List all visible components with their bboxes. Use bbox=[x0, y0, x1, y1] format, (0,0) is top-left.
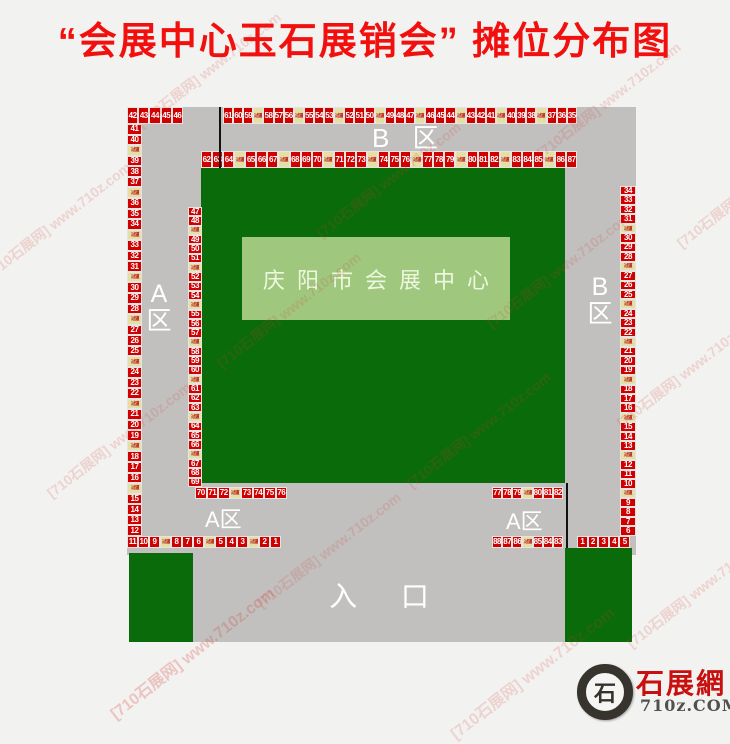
booth-cell: 32 bbox=[620, 205, 636, 214]
booth-cell: 11 bbox=[127, 536, 138, 548]
booth-cell: 60 bbox=[233, 107, 243, 124]
booth-cell: 55 bbox=[304, 107, 314, 124]
aisle-cell: 过道 bbox=[248, 536, 259, 548]
booth-cell: 79 bbox=[512, 487, 522, 499]
booth-col-right-outer: 34333231过道302928过道272625过道242322过道212019… bbox=[620, 186, 636, 536]
booth-cell: 4 bbox=[609, 536, 620, 548]
booth-cell: 85 bbox=[533, 536, 543, 548]
booth-row-bottom-inner-left: 707172过道73747576 bbox=[195, 487, 287, 499]
booth-cell: 6 bbox=[620, 526, 636, 535]
booth-cell: 2 bbox=[588, 536, 599, 548]
booth-cell: 36 bbox=[557, 107, 567, 124]
booth-cell: 82 bbox=[489, 151, 500, 168]
aisle-cell: 过道 bbox=[334, 107, 344, 124]
booth-cell: 70 bbox=[312, 151, 323, 168]
booth-cell: 69 bbox=[188, 478, 202, 487]
aisle-cell: 过道 bbox=[278, 151, 289, 168]
aisle-cell: 过道 bbox=[323, 151, 334, 168]
aisle-cell: 过道 bbox=[234, 151, 245, 168]
booth-cell: 25 bbox=[620, 290, 636, 299]
booth-cell: 49 bbox=[188, 235, 202, 244]
booth-cell: 59 bbox=[188, 356, 202, 365]
green-block-right bbox=[565, 548, 632, 642]
booth-cell: 4 bbox=[226, 536, 237, 548]
booth-cell: 25 bbox=[127, 346, 142, 357]
booth-cell: 59 bbox=[243, 107, 253, 124]
booth-cell: 77 bbox=[492, 487, 502, 499]
booth-cell: 37 bbox=[547, 107, 557, 124]
aisle-cell: 过道 bbox=[620, 413, 636, 422]
aisle-cell: 过道 bbox=[522, 536, 532, 548]
booth-row-bottom-outer-left: 11109过道876过道543过道21 bbox=[127, 536, 281, 548]
booth-cell: 54 bbox=[188, 291, 202, 300]
booth-cell: 33 bbox=[127, 240, 142, 251]
booth-cell: 23 bbox=[127, 378, 142, 389]
aisle-cell: 过道 bbox=[620, 262, 636, 271]
aisle-cell: 过道 bbox=[620, 451, 636, 460]
booth-cell: 78 bbox=[502, 487, 512, 499]
booth-cell: 35 bbox=[127, 209, 142, 220]
booth-cell: 58 bbox=[263, 107, 273, 124]
booth-cell: 10 bbox=[138, 536, 149, 548]
booth-row-top-left-corner: 4243444546 bbox=[127, 107, 183, 124]
booth-cell: 42 bbox=[476, 107, 486, 124]
booth-cell: 83 bbox=[553, 536, 563, 548]
aisle-cell: 过道 bbox=[455, 151, 466, 168]
aisle-cell: 过道 bbox=[544, 151, 555, 168]
booth-cell: 31 bbox=[127, 261, 142, 272]
booth-cell: 73 bbox=[356, 151, 367, 168]
watermark-text: [710石展网] www.710z.com bbox=[0, 157, 135, 282]
hall-name-label: 庆阳市会展中心 bbox=[251, 263, 501, 295]
booth-cell: 47 bbox=[188, 207, 202, 216]
booth-cell: 30 bbox=[620, 233, 636, 242]
booth-cell: 80 bbox=[533, 487, 543, 499]
booth-cell: 34 bbox=[127, 219, 142, 230]
booth-cell: 1 bbox=[270, 536, 281, 548]
booth-cell: 23 bbox=[620, 318, 636, 327]
booth-cell: 29 bbox=[620, 243, 636, 252]
booth-cell: 68 bbox=[188, 468, 202, 477]
booth-cell: 63 bbox=[212, 151, 223, 168]
booth-cell: 30 bbox=[127, 282, 142, 293]
aisle-cell: 过道 bbox=[620, 375, 636, 384]
booth-cell: 40 bbox=[506, 107, 516, 124]
booth-cell: 26 bbox=[127, 335, 142, 346]
booth-cell: 28 bbox=[127, 304, 142, 315]
booth-cell: 22 bbox=[127, 388, 142, 399]
booth-cell: 50 bbox=[188, 244, 202, 253]
booth-cell: 1 bbox=[577, 536, 588, 548]
booth-cell: 84 bbox=[522, 151, 533, 168]
booth-cell: 87 bbox=[502, 536, 512, 548]
entrance-label: 入 口 bbox=[193, 575, 565, 615]
booth-cell: 64 bbox=[188, 422, 202, 431]
booth-cell: 17 bbox=[620, 394, 636, 403]
booth-cell: 22 bbox=[620, 328, 636, 337]
booth-cell: 7 bbox=[620, 517, 636, 526]
booth-cell: 65 bbox=[245, 151, 256, 168]
booth-cell: 57 bbox=[188, 328, 202, 337]
booth-cell: 71 bbox=[207, 487, 219, 499]
aisle-cell: 过道 bbox=[127, 314, 142, 325]
booth-cell: 11 bbox=[620, 470, 636, 479]
booth-cell: 74 bbox=[253, 487, 265, 499]
booth-cell: 62 bbox=[188, 394, 202, 403]
separator-line-top bbox=[219, 107, 221, 168]
booth-cell: 17 bbox=[127, 462, 142, 473]
booth-cell: 43 bbox=[138, 107, 149, 124]
booth-cell: 86 bbox=[512, 536, 522, 548]
booth-cell: 71 bbox=[334, 151, 345, 168]
booth-cell: 67 bbox=[188, 459, 202, 468]
booth-cell: 80 bbox=[467, 151, 478, 168]
aisle-cell: 过道 bbox=[230, 487, 242, 499]
booth-cell: 21 bbox=[127, 409, 142, 420]
site-logo-icon: 石 bbox=[577, 664, 633, 720]
booth-cell: 88 bbox=[492, 536, 502, 548]
aisle-cell: 过道 bbox=[188, 375, 202, 384]
zone-a-left-letter: A bbox=[151, 280, 168, 308]
booth-cell: 9 bbox=[620, 498, 636, 507]
booth-row-bottom-outer-right: 888786过道858483 bbox=[492, 536, 563, 548]
booth-cell: 76 bbox=[276, 487, 288, 499]
booth-cell: 72 bbox=[218, 487, 230, 499]
booth-cell: 2 bbox=[259, 536, 270, 548]
booth-cell: 31 bbox=[620, 214, 636, 223]
booth-cell: 19 bbox=[127, 430, 142, 441]
booth-cell: 24 bbox=[127, 367, 142, 378]
booth-cell: 51 bbox=[354, 107, 364, 124]
booth-cell: 82 bbox=[553, 487, 563, 499]
booth-cell: 38 bbox=[526, 107, 536, 124]
aisle-cell: 过道 bbox=[536, 107, 546, 124]
booth-col-left-inner: 4748过道495051过道525354过道555657过道585960过道61… bbox=[188, 207, 202, 487]
booth-cell: 85 bbox=[533, 151, 544, 168]
aisle-cell: 过道 bbox=[620, 224, 636, 233]
booth-cell: 46 bbox=[172, 107, 183, 124]
booth-cell: 65 bbox=[188, 431, 202, 440]
aisle-cell: 过道 bbox=[620, 299, 636, 308]
booth-cell: 27 bbox=[127, 325, 142, 336]
aisle-cell: 过道 bbox=[620, 337, 636, 346]
booth-cell: 16 bbox=[127, 473, 142, 484]
aisle-cell: 过道 bbox=[127, 272, 142, 283]
booth-cell: 56 bbox=[284, 107, 294, 124]
booth-cell: 67 bbox=[267, 151, 278, 168]
booth-cell: 15 bbox=[127, 494, 142, 505]
booth-cell: 60 bbox=[188, 366, 202, 375]
separator-line-bottom bbox=[566, 483, 568, 548]
zone-label-a-bottom-left: A区 bbox=[205, 502, 242, 534]
booth-cell: 37 bbox=[127, 177, 142, 188]
booth-cell: 18 bbox=[127, 451, 142, 462]
booth-cell: 24 bbox=[620, 309, 636, 318]
booth-col-left-outer: 4140过道393837过道363534过道333231过道302928过道27… bbox=[127, 124, 142, 536]
zone-label-b-right: B 区 bbox=[583, 274, 617, 328]
booth-cell: 12 bbox=[620, 460, 636, 469]
aisle-cell: 过道 bbox=[127, 187, 142, 198]
aisle-cell: 过道 bbox=[188, 412, 202, 421]
aisle-cell: 过道 bbox=[127, 441, 142, 452]
booth-cell: 54 bbox=[314, 107, 324, 124]
booth-cell: 55 bbox=[188, 310, 202, 319]
booth-cell: 72 bbox=[345, 151, 356, 168]
zone-b-right-letter: B bbox=[592, 273, 609, 301]
booth-cell: 34 bbox=[620, 186, 636, 195]
booth-cell: 8 bbox=[620, 507, 636, 516]
booth-cell: 7 bbox=[182, 536, 193, 548]
booth-cell: 13 bbox=[127, 515, 142, 526]
booth-cell: 5 bbox=[215, 536, 226, 548]
booth-cell: 3 bbox=[237, 536, 248, 548]
aisle-cell: 过道 bbox=[127, 145, 142, 156]
booth-cell: 51 bbox=[188, 254, 202, 263]
booth-cell: 38 bbox=[127, 166, 142, 177]
booth-cell: 33 bbox=[620, 195, 636, 204]
booth-cell: 56 bbox=[188, 319, 202, 328]
aisle-cell: 过道 bbox=[127, 399, 142, 410]
hall-name-box: 庆阳市会展中心 bbox=[242, 237, 510, 320]
site-logo-domain: 710z.COM bbox=[640, 696, 730, 715]
booth-cell: 83 bbox=[511, 151, 522, 168]
zone-a-left-char: 区 bbox=[146, 307, 171, 335]
booth-cell: 39 bbox=[516, 107, 526, 124]
aisle-cell: 过道 bbox=[188, 338, 202, 347]
booth-cell: 3 bbox=[598, 536, 609, 548]
zone-label-b-top: B 区 bbox=[372, 118, 447, 155]
aisle-cell: 过道 bbox=[522, 487, 532, 499]
booth-cell: 9 bbox=[149, 536, 160, 548]
booth-cell: 68 bbox=[290, 151, 301, 168]
aisle-cell: 过道 bbox=[188, 300, 202, 309]
booth-cell: 44 bbox=[445, 107, 455, 124]
booth-cell: 20 bbox=[127, 420, 142, 431]
booth-cell: 64 bbox=[223, 151, 234, 168]
booth-cell: 14 bbox=[127, 504, 142, 515]
booth-cell: 41 bbox=[486, 107, 496, 124]
watermark-text: [710石展网] www.710z.com bbox=[673, 127, 730, 252]
booth-cell: 52 bbox=[188, 272, 202, 281]
booth-cell: 8 bbox=[171, 536, 182, 548]
booth-cell: 44 bbox=[149, 107, 160, 124]
zone-label-a-bottom-right: A区 bbox=[506, 504, 543, 536]
aisle-cell: 过道 bbox=[204, 536, 215, 548]
booth-cell: 16 bbox=[620, 403, 636, 412]
exhibition-hall: 庆阳市会展中心 bbox=[201, 168, 565, 483]
booth-cell: 27 bbox=[620, 271, 636, 280]
booth-row-bottom-inner-right: 777879过道808182 bbox=[492, 487, 563, 499]
booth-cell: 41 bbox=[127, 124, 142, 135]
booth-cell: 84 bbox=[543, 536, 553, 548]
booth-cell: 86 bbox=[555, 151, 566, 168]
booth-cell: 15 bbox=[620, 422, 636, 431]
booth-cell: 26 bbox=[620, 281, 636, 290]
booth-cell: 53 bbox=[324, 107, 334, 124]
booth-cell: 18 bbox=[620, 385, 636, 394]
green-block-left bbox=[129, 553, 193, 642]
zone-b-right-char: 区 bbox=[587, 300, 612, 328]
booth-cell: 75 bbox=[264, 487, 276, 499]
aisle-cell: 过道 bbox=[500, 151, 511, 168]
booth-cell: 21 bbox=[620, 347, 636, 356]
zone-label-a-left: A 区 bbox=[142, 281, 176, 335]
aisle-cell: 过道 bbox=[188, 263, 202, 272]
booth-cell: 81 bbox=[478, 151, 489, 168]
booth-cell: 63 bbox=[188, 403, 202, 412]
page-title: “会展中心玉石展销会” 摊位分布图 bbox=[0, 10, 730, 65]
booth-cell: 73 bbox=[241, 487, 253, 499]
aisle-cell: 过道 bbox=[188, 226, 202, 235]
booth-cell: 48 bbox=[188, 216, 202, 225]
booth-cell: 20 bbox=[620, 356, 636, 365]
booth-cell: 29 bbox=[127, 293, 142, 304]
booth-cell: 14 bbox=[620, 432, 636, 441]
booth-cell: 70 bbox=[195, 487, 207, 499]
booth-cell: 52 bbox=[344, 107, 354, 124]
booth-cell: 61 bbox=[223, 107, 233, 124]
booth-cell: 69 bbox=[301, 151, 312, 168]
booth-cell: 81 bbox=[543, 487, 553, 499]
aisle-cell: 过道 bbox=[127, 483, 142, 494]
booth-cell: 58 bbox=[188, 347, 202, 356]
aisle-cell: 过道 bbox=[253, 107, 263, 124]
aisle-cell: 过道 bbox=[188, 450, 202, 459]
booth-cell: 61 bbox=[188, 384, 202, 393]
booth-cell: 66 bbox=[188, 440, 202, 449]
aisle-cell: 过道 bbox=[127, 230, 142, 241]
booth-cell: 36 bbox=[127, 198, 142, 209]
aisle-cell: 过道 bbox=[456, 107, 466, 124]
booth-cell: 57 bbox=[274, 107, 284, 124]
booth-cell: 66 bbox=[256, 151, 267, 168]
booth-cell: 6 bbox=[193, 536, 204, 548]
booth-cell: 39 bbox=[127, 156, 142, 167]
aisle-cell: 过道 bbox=[294, 107, 304, 124]
booth-cell: 28 bbox=[620, 252, 636, 261]
booth-row-bottom-right-entry: 12345 bbox=[577, 536, 630, 548]
aisle-cell: 过道 bbox=[127, 356, 142, 367]
logo-stone-glyph: 石 bbox=[594, 676, 616, 708]
aisle-cell: 过道 bbox=[160, 536, 171, 548]
booth-cell: 45 bbox=[161, 107, 172, 124]
aisle-cell: 过道 bbox=[620, 489, 636, 498]
booth-cell: 53 bbox=[188, 282, 202, 291]
booth-cell: 43 bbox=[466, 107, 476, 124]
booth-cell: 13 bbox=[620, 441, 636, 450]
booth-cell: 62 bbox=[201, 151, 212, 168]
booth-cell: 32 bbox=[127, 251, 142, 262]
booth-cell: 19 bbox=[620, 366, 636, 375]
booth-cell: 5 bbox=[619, 536, 630, 548]
booth-cell: 42 bbox=[127, 107, 138, 124]
booth-cell: 87 bbox=[566, 151, 577, 168]
booth-cell: 40 bbox=[127, 135, 142, 146]
aisle-cell: 过道 bbox=[496, 107, 506, 124]
booth-cell: 35 bbox=[567, 107, 577, 124]
booth-cell: 10 bbox=[620, 479, 636, 488]
watermark-text: [710石展网] www.710z.com bbox=[623, 527, 730, 652]
booth-cell: 12 bbox=[127, 525, 142, 536]
